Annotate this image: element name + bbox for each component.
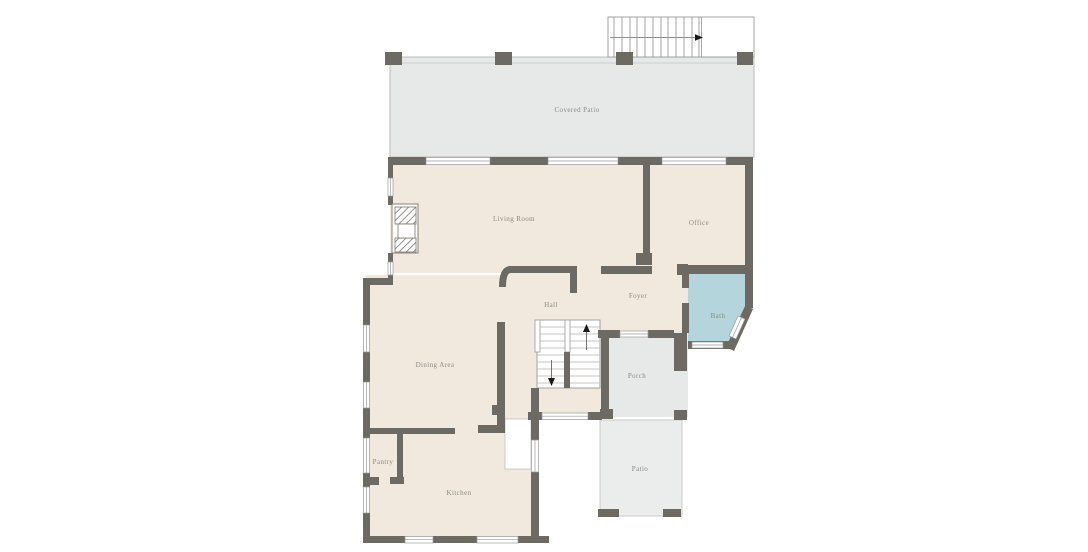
room-label-hall: Hall bbox=[544, 301, 558, 309]
stair-railing bbox=[565, 320, 570, 352]
window bbox=[364, 487, 370, 513]
window bbox=[548, 158, 618, 165]
front-door bbox=[542, 413, 588, 420]
floor-areas bbox=[366, 57, 754, 543]
window bbox=[364, 382, 370, 408]
interior-staircase bbox=[535, 320, 600, 388]
room-label-foyer: Foyer bbox=[629, 292, 648, 300]
room-label-patio: Patio bbox=[632, 465, 648, 473]
room-living-room bbox=[390, 160, 753, 273]
firebox bbox=[398, 224, 415, 238]
room-label-pantry: Pantry bbox=[373, 458, 394, 466]
stair-railing bbox=[535, 320, 540, 352]
window bbox=[405, 537, 433, 544]
window bbox=[477, 537, 518, 544]
window bbox=[426, 158, 490, 165]
fireplace bbox=[392, 204, 418, 253]
window bbox=[692, 342, 723, 348]
kitchen-counter bbox=[505, 419, 531, 469]
room-label-bath: Bath bbox=[711, 312, 726, 320]
window bbox=[364, 325, 370, 352]
outdoor-staircase bbox=[608, 17, 754, 57]
room-label-kitchen: Kitchen bbox=[447, 489, 472, 497]
room-label-living-room: Living Room bbox=[493, 215, 535, 223]
window bbox=[364, 438, 370, 473]
room-label-dining-area: Dining Area bbox=[416, 361, 455, 369]
room-label-covered-patio: Covered Patio bbox=[554, 106, 599, 114]
window bbox=[388, 178, 393, 196]
stair-divider-wall bbox=[564, 352, 570, 388]
window bbox=[662, 158, 726, 165]
floor-plan-canvas: Covered Patio Living Room Office Hall Fo… bbox=[0, 0, 1088, 552]
room-label-office: Office bbox=[689, 219, 709, 227]
window bbox=[620, 331, 648, 337]
room-label-porch: Porch bbox=[628, 372, 646, 380]
room-dining-kitchen bbox=[366, 275, 537, 543]
window bbox=[532, 440, 539, 472]
window bbox=[388, 262, 393, 275]
floor-plan-drawing: Covered Patio Living Room Office Hall Fo… bbox=[0, 0, 1088, 552]
